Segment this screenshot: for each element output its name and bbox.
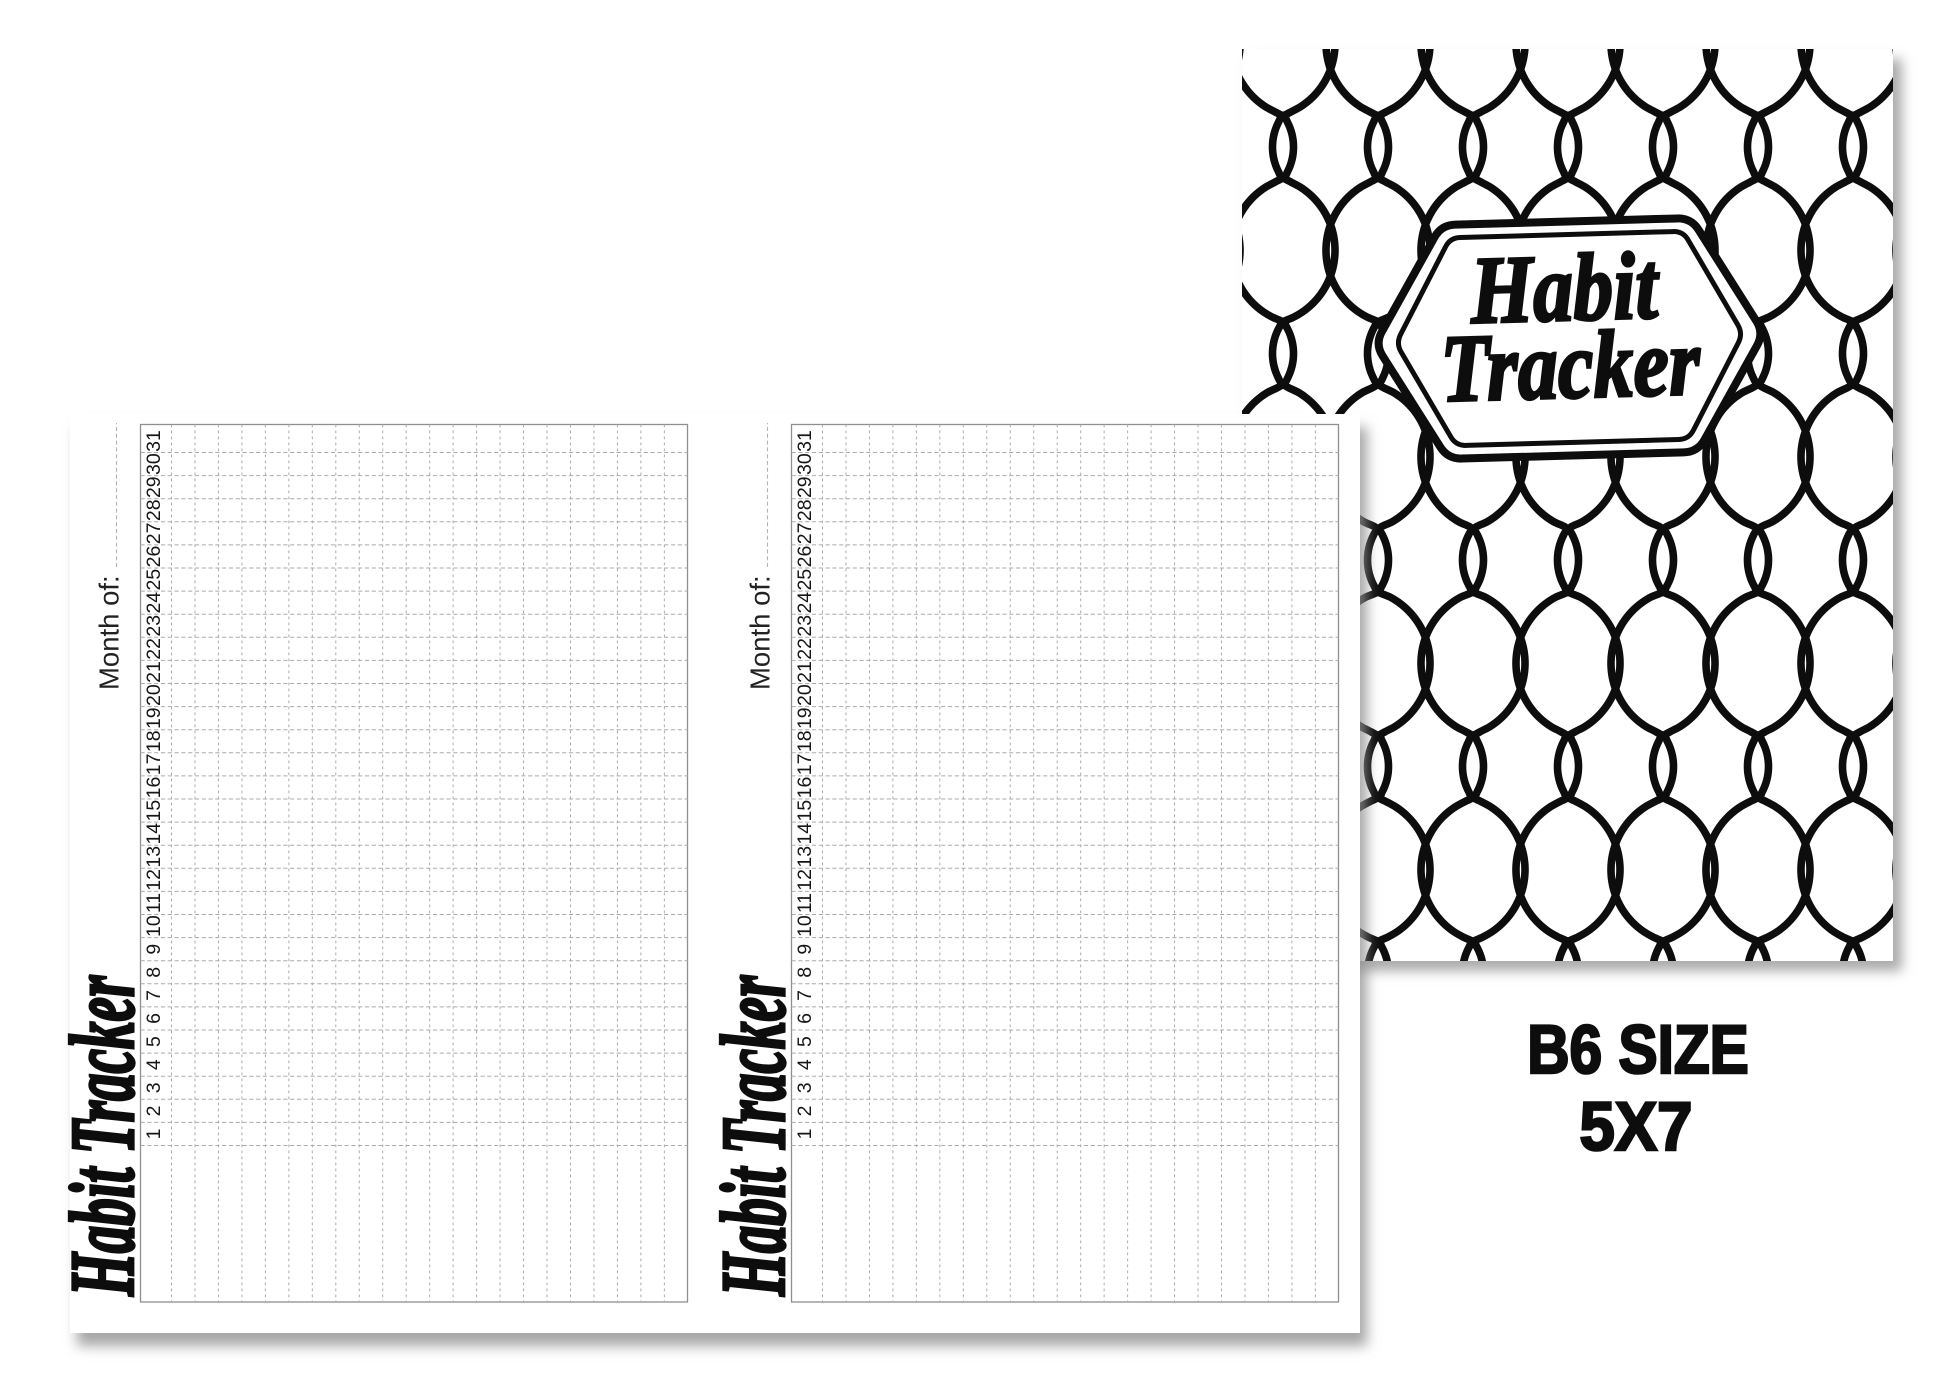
svg-text:Tracker: Tracker	[1439, 309, 1703, 423]
svg-text:B6 SIZE: B6 SIZE	[1527, 1011, 1749, 1089]
svg-text:5X7: 5X7	[1580, 1089, 1693, 1166]
